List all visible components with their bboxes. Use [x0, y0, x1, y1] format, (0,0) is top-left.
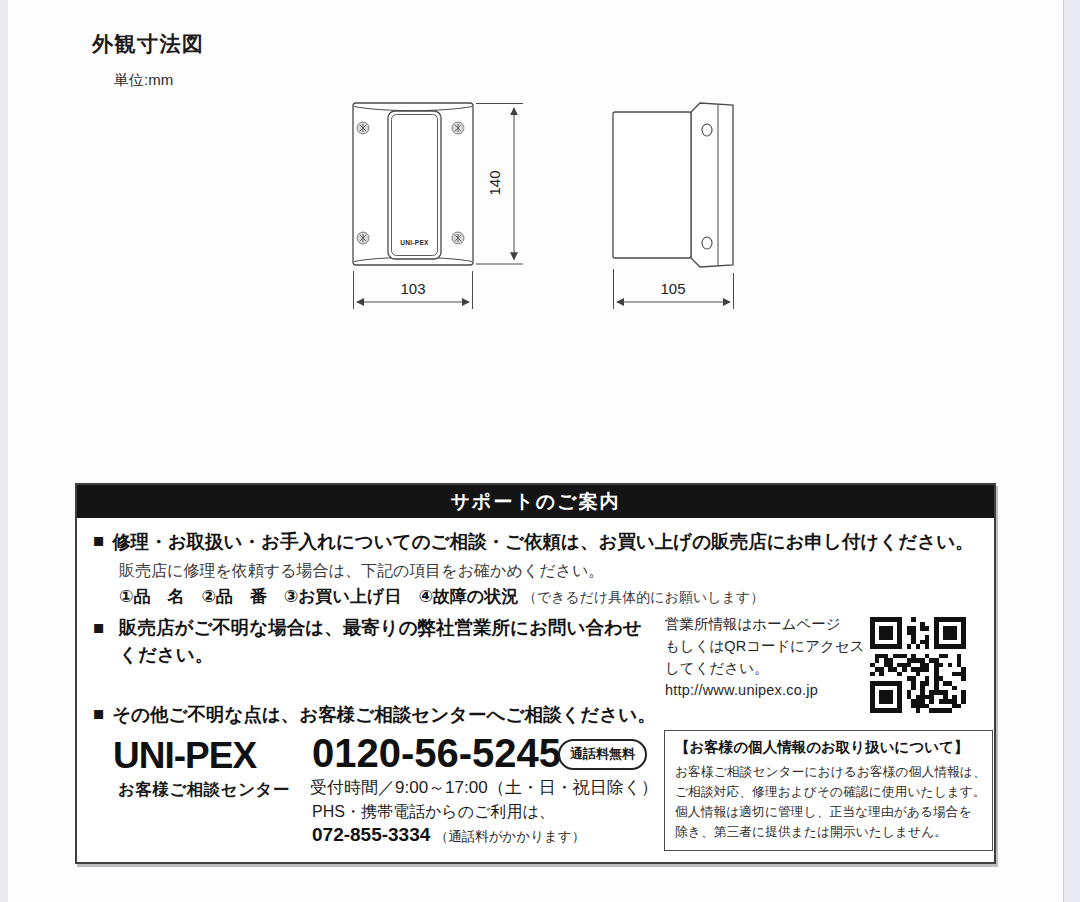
front-view-logo-text: UNI-PEX	[400, 239, 429, 246]
brand-logo: UNI-PEX	[113, 735, 256, 777]
dimension-height-value: 140	[486, 170, 503, 195]
checklist-note: （できるだけ具体的にお願いします）	[523, 589, 765, 605]
privacy-notice-box: 【お客様の個人情報のお取り扱いについて】 お客様ご相談センターにおけるお客様の個…	[664, 730, 993, 851]
manual-page: 外観寸法図 単位:mm UNI-PEX	[0, 0, 1080, 902]
tollfree-phone-number: 0120-56-5245	[312, 731, 561, 776]
support-repair-subtext: 販売店に修理を依頼する場合は、下記の項目をお確かめください。	[119, 561, 604, 582]
dimension-diagram: UNI-PEX 140 103 105	[330, 85, 750, 325]
dimension-width-value: 103	[400, 280, 425, 297]
dimension-height: 140	[476, 104, 523, 265]
page-title: 外観寸法図	[92, 30, 205, 58]
privacy-title: 【お客様の個人情報のお取り扱いについて】	[675, 738, 982, 757]
office-info: 営業所情報はホームページ もしくはQRコードにアクセス してください。 http…	[665, 613, 865, 701]
support-info-box: サポートのご案内 ■修理・お取扱い・お手入れについてのご相談・ご依頼は、お買い上…	[75, 483, 996, 864]
support-repair-heading-text: 修理・お取扱い・お手入れについてのご相談・ご依頼は、お買い上げの販売店にお申し付…	[112, 531, 973, 552]
support-other-heading: ■その他ご不明な点は、お客様ご相談センターへご相談ください。	[93, 702, 656, 727]
mobile-phone-row: 072-855-3334 （通話料がかかります）	[312, 824, 585, 846]
mobile-fee-note: （通話料がかかります）	[435, 829, 585, 844]
bullet-icon: ■	[93, 530, 104, 552]
support-other-heading-text: その他ご不明な点は、お客様ご相談センターへご相談ください。	[112, 704, 655, 725]
office-info-line1: 営業所情報はホームページ	[665, 613, 865, 635]
page-left-edge	[0, 0, 8, 902]
mobile-phone-number: 072-855-3334	[312, 824, 430, 845]
privacy-line: 除き、第三者に提供または開示いたしません。	[675, 822, 982, 842]
front-view-drawing: UNI-PEX	[353, 103, 473, 265]
support-header: サポートのご案内	[77, 485, 994, 518]
checklist-items: ①品 名 ②品 番 ③お買い上げ日 ④故障の状況	[119, 587, 518, 606]
brand-subtitle: お客様ご相談センター	[118, 779, 290, 801]
dimension-depth: 105	[614, 269, 734, 309]
office-info-line2: もしくはQRコードにアクセス	[665, 635, 865, 657]
side-view-drawing	[613, 103, 733, 267]
bullet-icon: ■	[93, 615, 104, 642]
privacy-line: ご相談対応、修理およびその確認に使用いたします。	[675, 782, 982, 802]
privacy-line: お客様ご相談センターにおけるお客様の個人情報は、	[675, 762, 982, 782]
support-dealer-heading-text: 販売店がご不明な場合は、最寄りの弊社営業所にお問い合わせください。	[119, 617, 642, 665]
office-info-line3: してください。	[665, 657, 865, 679]
support-checklist: ①品 名 ②品 番 ③お買い上げ日 ④故障の状況 （できるだけ具体的にお願いしま…	[119, 585, 764, 608]
privacy-line: 個人情報は適切に管理し、正当な理由がある場合を	[675, 802, 982, 822]
mobile-usage-note: PHS・携帯電話からのご利用は、	[312, 802, 555, 823]
bullet-icon: ■	[93, 703, 104, 725]
qr-code	[870, 617, 966, 713]
reception-hours: 受付時間／9:00～17:00（土・日・祝日除く）	[310, 776, 658, 799]
page-right-edge	[1063, 0, 1080, 902]
dimension-depth-value: 105	[660, 280, 685, 297]
website-url: http://www.unipex.co.jp	[665, 679, 865, 701]
tollfree-badge: 通話料無料	[558, 739, 647, 770]
support-dealer-heading: ■販売店がご不明な場合は、最寄りの弊社営業所にお問い合わせください。	[93, 615, 659, 669]
unit-label: 単位:mm	[114, 71, 173, 90]
dimension-width: 103	[354, 271, 473, 309]
support-repair-heading: ■修理・お取扱い・お手入れについてのご相談・ご依頼は、お買い上げの販売店にお申し…	[93, 529, 974, 554]
